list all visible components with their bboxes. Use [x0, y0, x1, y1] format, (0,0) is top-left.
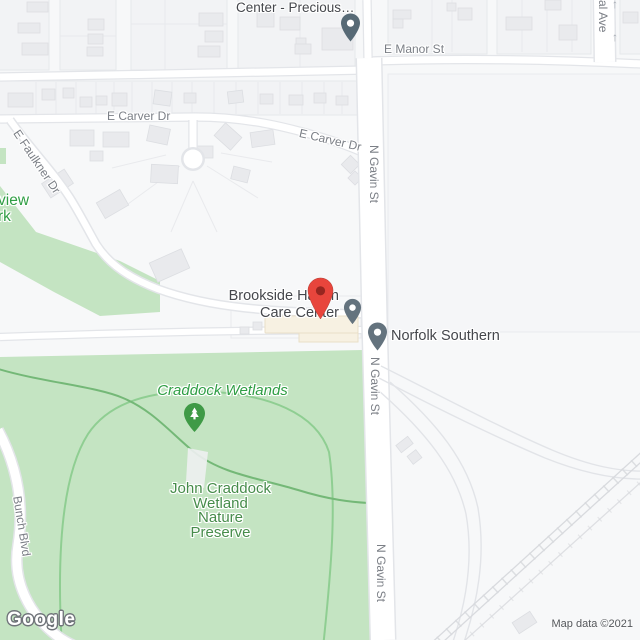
park-label-john-craddock-preserve[interactable]: John Craddock Wetland Nature Preserve — [155, 482, 286, 540]
park-label-line: rk — [0, 209, 29, 225]
poi-label-norfolk-southern[interactable]: Norfolk Southern — [391, 328, 500, 345]
street-label-al-ave: al Ave — [596, 0, 610, 32]
poi-pin-brookside[interactable] — [343, 298, 362, 325]
one-way-arrow-icon: ↑ — [612, 0, 618, 11]
nature-pin-craddock-wetlands[interactable] — [183, 402, 206, 433]
park-label-craddock-wetlands[interactable]: Craddock Wetlands — [150, 383, 295, 399]
park-label-line: view — [0, 193, 29, 209]
street-label-n-gavin-st-middle: N Gavin St — [368, 357, 382, 415]
one-way-arrow-icon: ↑ — [612, 30, 618, 44]
street-label-n-gavin-st-lower: N Gavin St — [374, 544, 388, 602]
railroad-layer — [378, 366, 640, 640]
street-label-e-carver-dr-upper: E Carver Dr — [107, 109, 170, 123]
park-label-cut-off: view rk — [0, 193, 29, 225]
red-destination-pin[interactable] — [307, 277, 334, 320]
map-viewport[interactable]: ↑ ↑ E Manor St E Carver Dr E Carver Dr E… — [0, 0, 640, 640]
poi-label-center-precious[interactable]: Center - Precious… — [236, 0, 355, 16]
street-label-e-manor-st: E Manor St — [384, 42, 444, 56]
street-label-n-gavin-st-upper: N Gavin St — [367, 145, 381, 203]
poi-pin-norfolk-southern[interactable] — [367, 321, 388, 352]
park-label-line: Preserve — [155, 526, 286, 541]
google-logo[interactable]: Google — [7, 609, 75, 631]
poi-pin-precious-center[interactable] — [340, 12, 361, 43]
map-data-attribution: Map data ©2021 — [552, 618, 634, 630]
